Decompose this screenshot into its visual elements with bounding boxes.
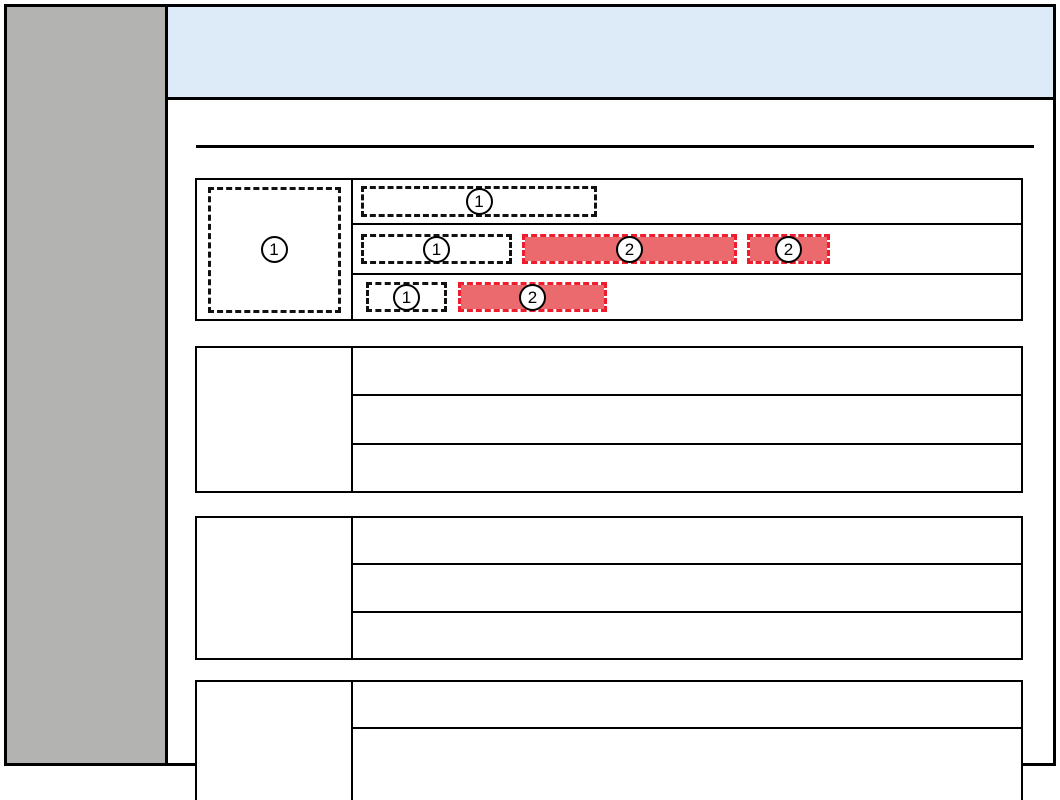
marker-badge: 2: [616, 236, 643, 263]
highlight-placeholder[interactable]: 2: [458, 282, 607, 312]
table1-right-column: 1 1 2 2 1 2: [353, 180, 1021, 319]
table4-left-cell: [197, 682, 353, 800]
table1-row-3: 1 2: [353, 273, 1021, 319]
table3-row-2: [353, 563, 1021, 610]
table2-left-cell: [197, 348, 353, 491]
layout-table-3: [195, 516, 1023, 660]
table4-row-1: [353, 682, 1021, 727]
table3-row-1: [353, 518, 1021, 563]
image-placeholder[interactable]: 1: [361, 234, 512, 264]
image-placeholder[interactable]: 1: [361, 186, 597, 217]
title-rule: [196, 145, 1034, 148]
table3-row-3: [353, 611, 1021, 658]
table1-row-1: 1: [353, 180, 1021, 223]
layout-table-1: 1 1 1 2 2 1 2: [195, 178, 1023, 321]
sidebar-panel: [7, 7, 168, 763]
marker-badge: 2: [775, 236, 802, 263]
image-placeholder[interactable]: 1: [366, 282, 447, 312]
header-banner: [168, 7, 1053, 100]
layout-table-4: [195, 680, 1023, 800]
marker-badge: 1: [466, 188, 493, 215]
marker-badge: 1: [393, 284, 420, 311]
table2-right-column: [353, 348, 1021, 491]
table1-left-cell: 1: [197, 180, 353, 319]
table2-row-3: [353, 443, 1021, 491]
highlight-placeholder[interactable]: 2: [522, 234, 737, 264]
marker-badge: 1: [261, 236, 288, 263]
table2-row-1: [353, 348, 1021, 394]
table4-right-column: [353, 682, 1021, 800]
marker-badge: 2: [519, 284, 546, 311]
image-placeholder[interactable]: 1: [208, 187, 341, 313]
highlight-placeholder[interactable]: 2: [747, 234, 830, 264]
table4-row-2: [353, 727, 1021, 800]
marker-badge: 1: [423, 236, 450, 263]
table3-left-cell: [197, 518, 353, 658]
table3-right-column: [353, 518, 1021, 658]
table1-row-2: 1 2 2: [353, 223, 1021, 273]
layout-table-2: [195, 346, 1023, 493]
table2-row-2: [353, 394, 1021, 442]
